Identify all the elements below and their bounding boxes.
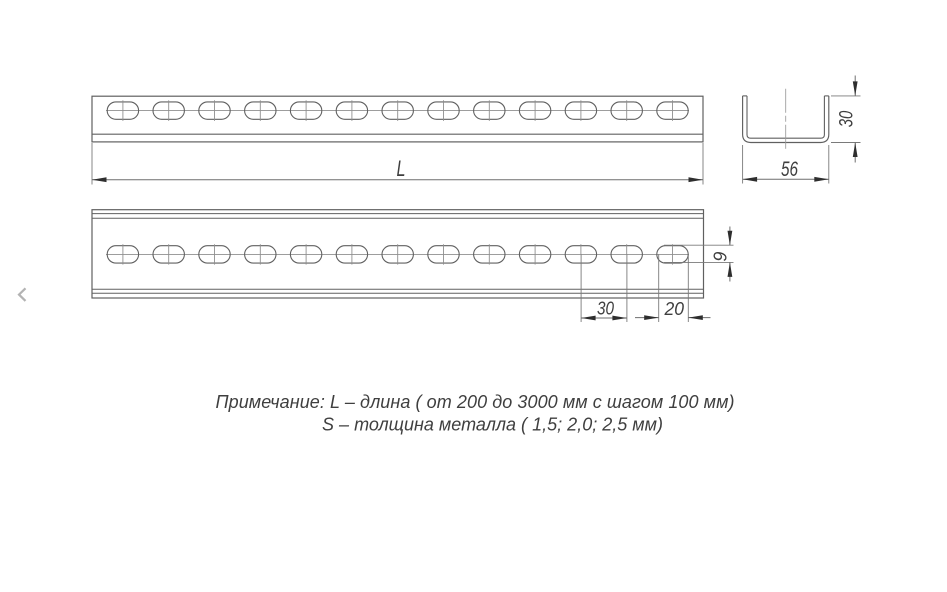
svg-text:30: 30 <box>837 110 858 127</box>
svg-text:9: 9 <box>710 252 730 262</box>
svg-text:Примечание: L – длина ( от 200: Примечание: L – длина ( от 200 до 3000 м… <box>216 392 735 412</box>
svg-text:L: L <box>397 156 406 181</box>
svg-text:30: 30 <box>597 298 615 319</box>
svg-text:S – толщина металла ( 1,5; 2,0: S – толщина металла ( 1,5; 2,0; 2,5 мм) <box>322 415 663 435</box>
svg-text:56: 56 <box>781 158 798 181</box>
svg-text:20: 20 <box>664 298 685 319</box>
